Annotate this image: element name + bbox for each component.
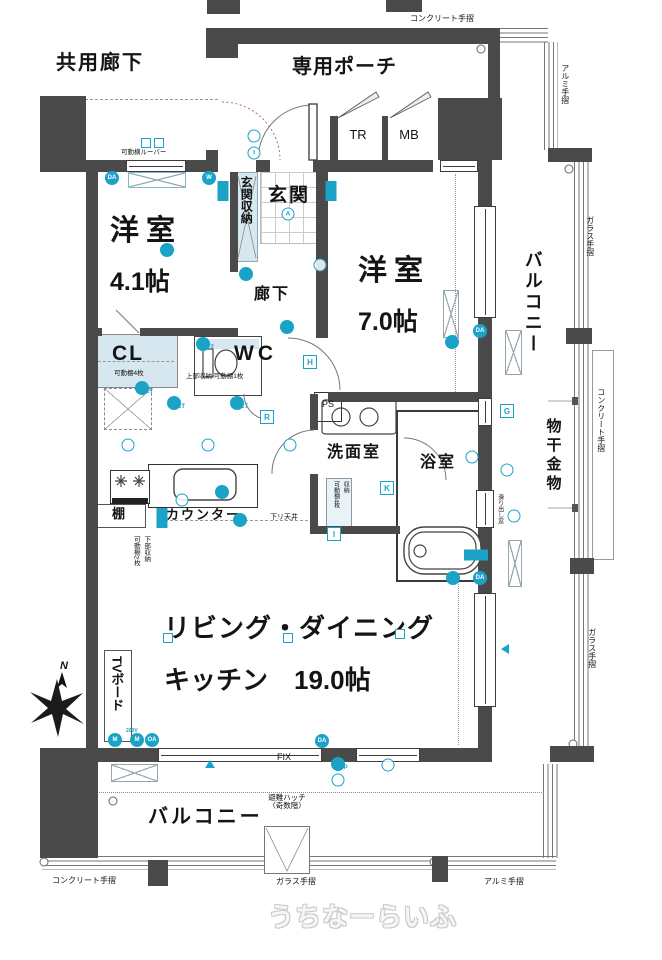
fixture-icon bbox=[501, 464, 514, 477]
fixture-icon bbox=[233, 513, 247, 527]
label-evacuation-hatch: 避難ハッチ （奇数階） bbox=[254, 794, 320, 811]
fixture-icon bbox=[332, 774, 345, 787]
g-fixture-icon: G bbox=[500, 404, 514, 418]
mb-door-leaf bbox=[390, 92, 431, 118]
room1-size: 4.1帖 bbox=[110, 269, 182, 297]
window bbox=[474, 593, 496, 707]
label-counter: カウンター bbox=[166, 508, 241, 522]
label-compass-n: N bbox=[60, 660, 68, 672]
entrance-door-leaf bbox=[309, 104, 317, 160]
label-wc-note: 上部収納 可動棚1枚 bbox=[186, 373, 243, 380]
ldk-line1: リビング・ダイニング bbox=[164, 614, 434, 643]
da-fixture-icon: DA bbox=[105, 171, 119, 185]
ldk-line2: キッチン 19.0帖 bbox=[164, 666, 434, 695]
wall-segment bbox=[207, 0, 240, 14]
wall-segment bbox=[438, 98, 502, 160]
m-fixture-icon: M bbox=[108, 733, 122, 747]
wall-segment bbox=[184, 160, 208, 172]
fixture-icon bbox=[215, 485, 229, 499]
wall-segment bbox=[40, 96, 86, 172]
room-label-yoshitsu-41: 洋室 4.1帖 bbox=[110, 198, 182, 314]
fixture-icon bbox=[446, 571, 460, 585]
wall-segment bbox=[310, 526, 400, 534]
label-rail-concrete-top: コンクリート手摺 bbox=[410, 15, 474, 24]
da-fixture-icon: DA bbox=[473, 324, 487, 338]
wall-segment bbox=[256, 160, 270, 172]
wall-segment bbox=[420, 748, 478, 762]
i-fixture-icon: I bbox=[327, 527, 341, 541]
fixture-icon bbox=[283, 633, 293, 643]
wall-segment bbox=[310, 474, 318, 532]
fixture-icon bbox=[501, 644, 509, 654]
hatch-cross-box bbox=[443, 290, 459, 338]
label-laundry-hardware: 物干金物 bbox=[544, 418, 561, 494]
room1-name: 洋室 bbox=[110, 216, 182, 248]
k-fixture-icon: K bbox=[380, 481, 394, 495]
label-counter-storage: 下部収納 可動棚2枚 bbox=[130, 536, 151, 566]
wall-segment bbox=[206, 28, 488, 44]
wall-segment bbox=[478, 426, 492, 490]
wall-segment bbox=[40, 748, 98, 858]
washer-pan bbox=[360, 408, 378, 426]
label-fix: FIX bbox=[277, 753, 291, 763]
stove-front-band bbox=[112, 498, 148, 504]
label-corridor: 廊下 bbox=[254, 286, 290, 304]
label-shared-corridor: 共用廊下 bbox=[56, 52, 144, 74]
label-shelf: 棚 bbox=[112, 507, 125, 521]
wall-segment bbox=[206, 28, 238, 58]
balcony-railing bbox=[543, 764, 559, 858]
label-rail-glass-right-upper: ガラス手摺 bbox=[585, 216, 594, 256]
concrete-rail-outline bbox=[592, 350, 614, 560]
wall-segment bbox=[478, 160, 492, 206]
room2-size: 7.0帖 bbox=[358, 309, 430, 337]
fixture-icon: WP bbox=[331, 757, 345, 771]
fixture-icon bbox=[154, 138, 164, 148]
wall-segment bbox=[478, 707, 492, 762]
floor-plan: 共用廊下 専用ポーチ コンクリート手摺 アルミ手摺 ガラス手摺 コンクリート手摺… bbox=[0, 0, 662, 960]
balcony-railing bbox=[544, 42, 558, 150]
label-rail-glass-bottom: ガラス手摺 bbox=[276, 878, 316, 887]
washroom-door-arc bbox=[272, 430, 314, 474]
label-balcony-right: バルコニー bbox=[522, 250, 542, 355]
fixture-icon bbox=[40, 858, 49, 867]
r-fixture-icon: R bbox=[260, 410, 274, 424]
label-ps: PS bbox=[314, 400, 342, 410]
room2-name: 洋室 bbox=[358, 256, 430, 288]
fixture-icon bbox=[163, 633, 173, 643]
label-rail-alumi-right: アルミ手摺 bbox=[560, 64, 569, 104]
entrance-door-arc bbox=[258, 105, 313, 158]
label-cl: CL bbox=[112, 342, 144, 365]
wall-segment bbox=[570, 558, 594, 574]
fixture-icon bbox=[477, 45, 486, 54]
i-fixture-icon: I bbox=[248, 147, 261, 160]
wall-segment bbox=[548, 148, 592, 162]
fixture-icon bbox=[395, 629, 405, 639]
watermark: うちなーらいふ bbox=[268, 903, 457, 932]
label-wc: WC bbox=[234, 342, 277, 365]
label-washroom: 洗面室 bbox=[327, 444, 381, 462]
wall-segment bbox=[86, 160, 98, 762]
label-mb: MB bbox=[386, 128, 432, 142]
label-bathroom: 浴室 bbox=[420, 454, 456, 472]
window bbox=[158, 748, 322, 762]
wall-segment bbox=[488, 28, 500, 100]
compass-star-icon bbox=[30, 679, 84, 737]
fixture-icon bbox=[205, 760, 215, 768]
fixture-icon bbox=[122, 439, 135, 452]
wall-segment bbox=[148, 860, 168, 886]
window bbox=[126, 160, 186, 172]
fixture-icon bbox=[109, 797, 118, 806]
window bbox=[440, 160, 478, 172]
room-label-ldk: リビング・ダイニング キッチン 19.0帖 bbox=[164, 596, 434, 712]
label-balcony-bottom: バルコニー bbox=[148, 806, 263, 828]
guide-line bbox=[455, 174, 456, 392]
a-fixture-icon: A bbox=[282, 208, 295, 221]
wall-segment bbox=[86, 160, 128, 172]
window bbox=[476, 490, 494, 528]
hatch-cross-box bbox=[128, 172, 186, 188]
wall-segment bbox=[386, 0, 422, 12]
fixture-icon bbox=[218, 181, 229, 201]
label-private-porch: 専用ポーチ bbox=[292, 56, 397, 78]
fixture-icon bbox=[382, 759, 395, 772]
tr-door-leaf bbox=[338, 92, 379, 118]
kitchen-counter bbox=[148, 464, 258, 508]
label-louver-note: 可動横ルーバー bbox=[120, 149, 167, 156]
fixture-icon bbox=[202, 439, 215, 452]
label-rail-glass-right-lower: ガラス手摺 bbox=[587, 628, 596, 668]
fixture-icon bbox=[280, 320, 294, 334]
fixture-icon bbox=[466, 451, 479, 464]
label-rail-concrete-bottom: コンクリート手摺 bbox=[52, 877, 116, 886]
fixture-icon bbox=[565, 165, 574, 174]
wall-segment bbox=[550, 746, 594, 762]
wall-segment bbox=[98, 748, 158, 762]
wall-segment bbox=[566, 328, 592, 344]
label-dropped-ceiling: 下リ天井 bbox=[270, 514, 298, 522]
fixture-icon bbox=[141, 138, 151, 148]
fixture-icon bbox=[160, 243, 174, 257]
window bbox=[474, 206, 496, 318]
hatch-cross-box bbox=[111, 764, 158, 782]
label-tr: TR bbox=[334, 128, 382, 142]
fixture-icon bbox=[157, 508, 168, 528]
fixture-icon bbox=[248, 130, 261, 143]
label-rail-concrete-right: コンクリート手摺 bbox=[596, 388, 605, 452]
label-washroom-storage: 収納 可動棚4枚 bbox=[330, 481, 349, 508]
label-entrance: 玄関 bbox=[268, 186, 310, 207]
wall-segment bbox=[432, 856, 448, 882]
fixture-icon: 2ET bbox=[230, 396, 244, 410]
wall-segment bbox=[140, 328, 238, 336]
da-fixture-icon: DA bbox=[315, 734, 329, 748]
h-fixture-icon: H bbox=[303, 355, 317, 369]
oa-fixture-icon: OA bbox=[145, 733, 159, 747]
fixture-icon bbox=[445, 335, 459, 349]
fixture-icon bbox=[176, 494, 189, 507]
hatch-cross-box bbox=[508, 540, 522, 587]
room-label-yoshitsu-70: 洋室 7.0帖 bbox=[358, 238, 430, 354]
evacuation-hatch-box bbox=[264, 826, 310, 874]
fixture-icon: 2ET bbox=[167, 396, 181, 410]
label-entrance-storage: 玄関収納 bbox=[239, 176, 252, 224]
fixture-icon bbox=[464, 550, 488, 561]
fixture-icon bbox=[326, 181, 337, 201]
fixture-icon: 2ET bbox=[196, 337, 210, 351]
fixture-icon bbox=[239, 267, 253, 281]
fixture-icon bbox=[284, 439, 297, 452]
da-fixture-icon: DA bbox=[473, 571, 487, 585]
label-sliding-window: 滑り出し窓 bbox=[496, 494, 503, 524]
label-cl-note: 可動棚4枚 bbox=[114, 370, 144, 377]
wall-segment bbox=[86, 328, 102, 336]
compass-north-arrow-icon bbox=[57, 672, 67, 688]
m-fixture-icon: M bbox=[130, 733, 144, 747]
fixture-icon: 2ET bbox=[135, 381, 149, 395]
fixture-icon bbox=[314, 259, 327, 272]
wall-segment bbox=[328, 392, 478, 402]
window bbox=[478, 398, 492, 426]
wall-segment bbox=[230, 172, 238, 272]
fixture-icon bbox=[508, 510, 521, 523]
label-tv-board: TVボード bbox=[109, 656, 123, 712]
hatch-cross-box bbox=[505, 330, 522, 375]
w-fixture-icon: W bbox=[202, 171, 216, 185]
label-rail-alumi-bottom: アルミ手摺 bbox=[484, 878, 524, 887]
wall-segment bbox=[206, 150, 218, 172]
